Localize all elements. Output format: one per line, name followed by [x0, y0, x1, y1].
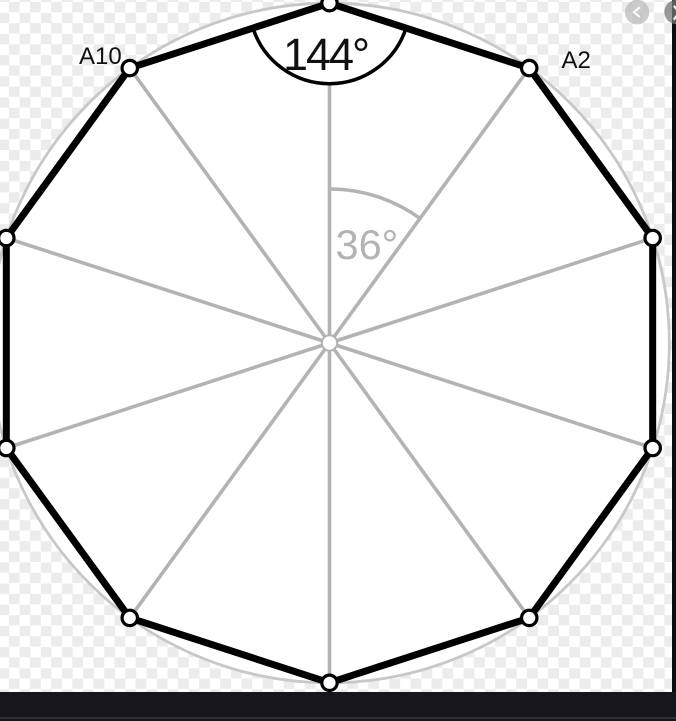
- svg-text:144°: 144°: [283, 29, 368, 80]
- svg-text:A2: A2: [562, 47, 591, 74]
- svg-text:A10: A10: [79, 43, 122, 70]
- svg-text:36°: 36°: [336, 221, 399, 268]
